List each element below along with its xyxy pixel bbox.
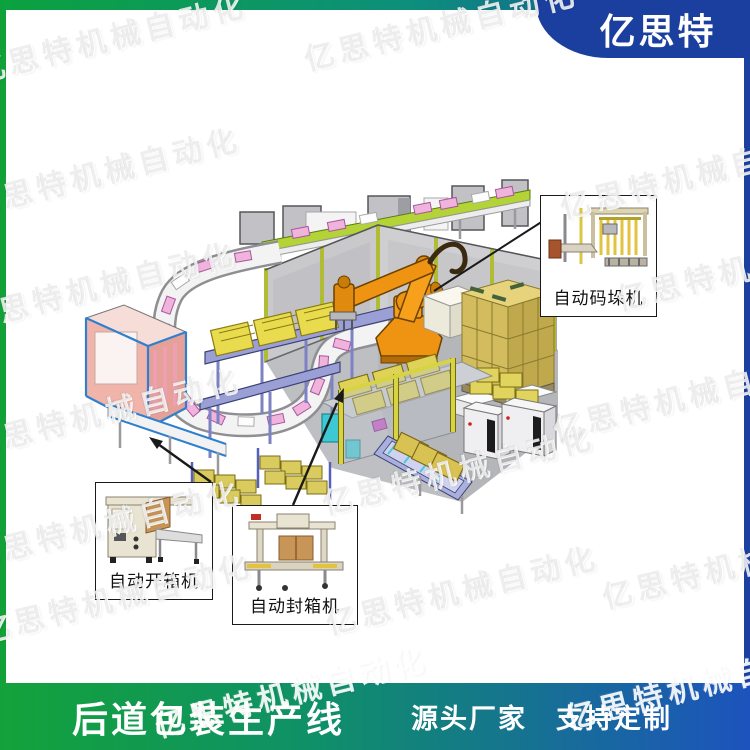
case-opener-thumbnail [100,487,207,567]
callout-case-sealer: 自动封箱机 [232,505,358,625]
leader-line-opener [149,437,211,482]
bottom-banner: 后道包装生产线 源头厂家 支持定制 [0,683,750,750]
callout-label: 自动开箱机 [96,567,212,592]
banner-title: 后道包装生产线 [72,691,345,743]
logo-text: 亿思特 [599,3,716,55]
palletizer-thumbnail [545,200,651,284]
left-edge-strip [0,10,6,683]
arrowhead [334,388,344,403]
case-sealer-thumbnail [237,510,352,592]
callout-palletizer: 自动码垛机 [540,195,657,317]
right-edge-strip [744,10,750,683]
callout-case-opener: 自动开箱机 [95,482,213,600]
callout-label: 自动码垛机 [541,284,656,309]
leader-line-sealer [293,388,344,505]
product-image-page: 自动码垛机 自动开箱机 [0,0,750,750]
banner-subtitle: 源头厂家 支持定制 [411,697,672,736]
callout-label: 自动封箱机 [233,592,357,617]
leader-line-palletizer [434,221,543,291]
logo-banner: 亿思特 [536,0,750,58]
callout-leaders [0,0,750,750]
